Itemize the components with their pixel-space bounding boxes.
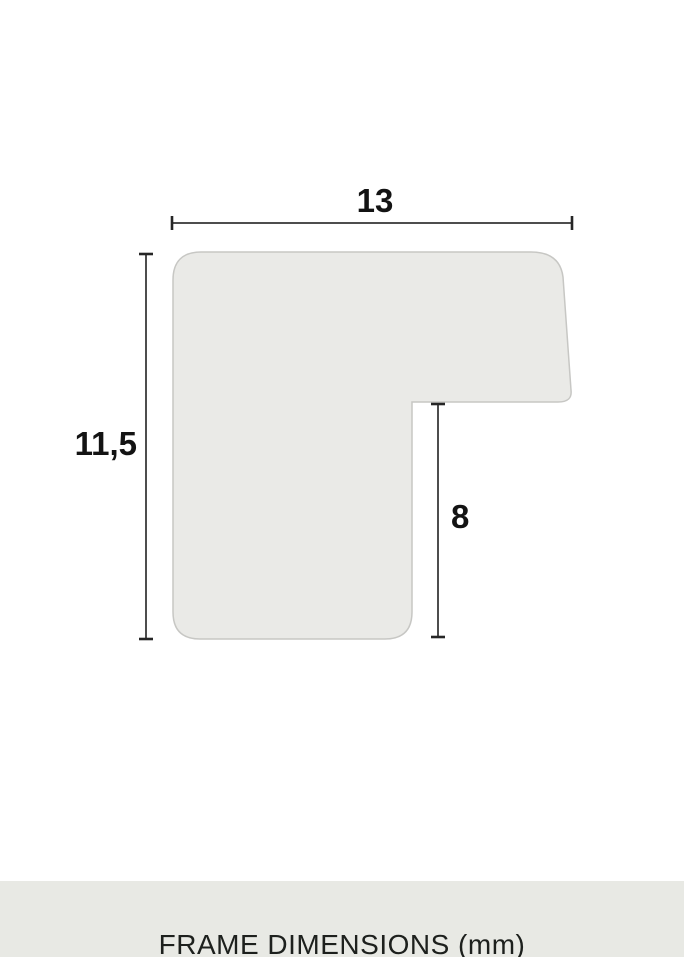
rabbet-dimension-label: 8	[451, 498, 469, 535]
frame-profile-shape	[173, 252, 571, 639]
frame-profile-diagram: 13 11,5 8	[0, 0, 684, 881]
footer-bar: FRAME DIMENSIONS (mm)	[0, 881, 684, 957]
width-dimension-label: 13	[357, 182, 394, 219]
frame-dimensions-page: 13 11,5 8 FRAME DIMENSIONS (mm)	[0, 0, 684, 957]
footer-caption: FRAME DIMENSIONS (mm)	[159, 929, 526, 957]
height-dimension-label: 11,5	[75, 425, 137, 462]
